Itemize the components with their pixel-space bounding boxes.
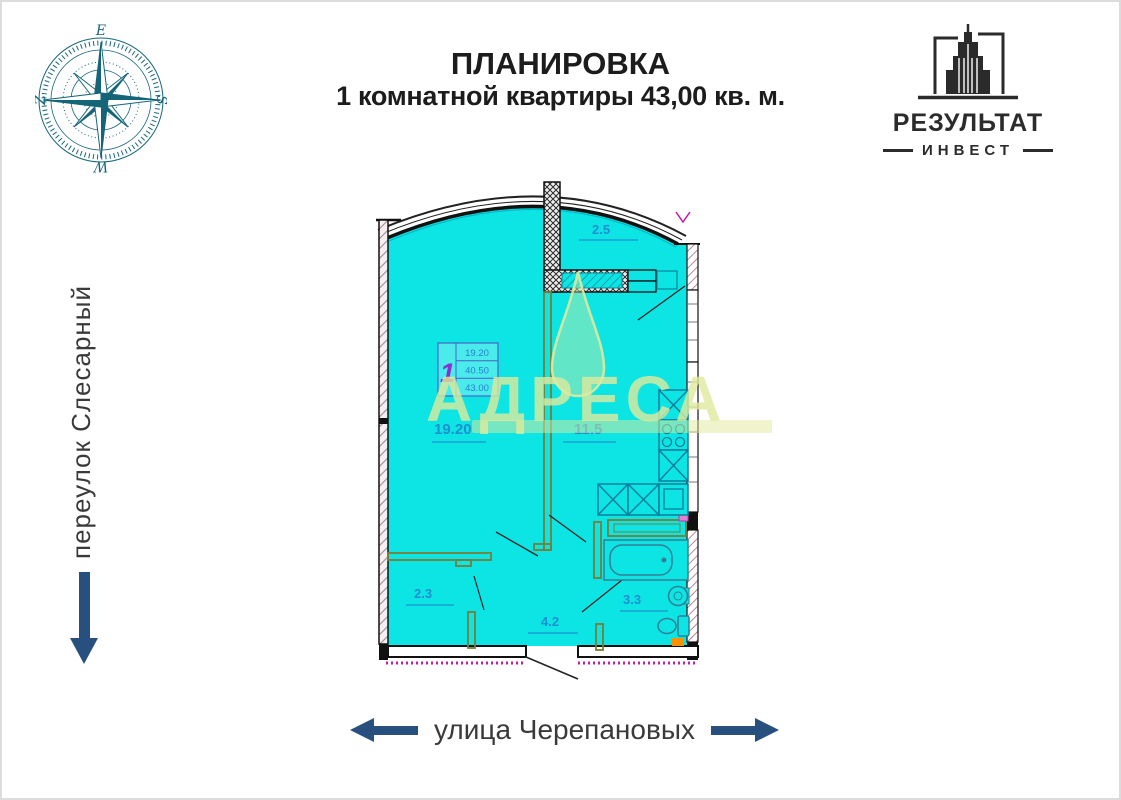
arrow-head-left-icon [350,718,374,742]
stamp-living-area: 19.20 [465,348,489,359]
stamp-room-count: 1 [440,358,455,388]
kitchen-area-label: 11.5 [574,421,602,438]
building-icon [913,24,1023,102]
orange-marker [672,638,684,646]
apartment-stamp: 1 19.20 40.50 43.00 [438,343,498,396]
developer-logo: РЕЗУЛЬТАТ ИНВЕСТ [868,24,1068,159]
arrow-shaft [79,572,90,638]
bottom-outer-wall [386,646,698,679]
closet-area-label: 2.3 [414,586,432,601]
street-label-bottom: улица Черепановых [434,714,695,746]
entrance-door-swing [526,657,578,679]
arrow-shaft [374,726,418,735]
compass-letter-bottom: W [92,158,108,174]
stamp-total-area: 43.00 [465,383,489,394]
street-label-left: переулок Слесарный [66,285,97,559]
stamp-area-no-balcony: 40.50 [465,366,489,377]
balcony-area-label: 2.5 [592,222,610,237]
arrow-head-right-icon [755,718,779,742]
bathtub [604,540,688,580]
street-arrow-right [711,718,779,742]
logo-dash-left [883,149,913,152]
arrow-head-down-icon [70,638,98,664]
bath-area-label: 3.3 [623,592,641,607]
bathroom-sink [669,587,690,606]
flyer-page: E S W Z ПЛАНИРОВКА 1 комнатной квартиры … [0,0,1121,800]
compass-letter-top: E [95,23,106,39]
arrow-shaft [711,726,755,735]
street-arrow-left [350,718,418,742]
hall-area-label: 4.2 [541,614,559,629]
logo-dash-right [1023,149,1053,152]
living-area-label: 19.20 [434,421,472,438]
floor-plan: 2.5 19.20 11.5 2.3 4.2 3.3 1 19.20 40.50… [376,172,708,684]
logo-title: РЕЗУЛЬТАТ [868,109,1068,138]
street-row-bottom: улица Черепановых [322,714,807,746]
street-arrow-down [70,572,98,664]
logo-subtitle: ИНВЕСТ [922,142,1014,159]
logo-subtitle-row: ИНВЕСТ [868,142,1068,159]
